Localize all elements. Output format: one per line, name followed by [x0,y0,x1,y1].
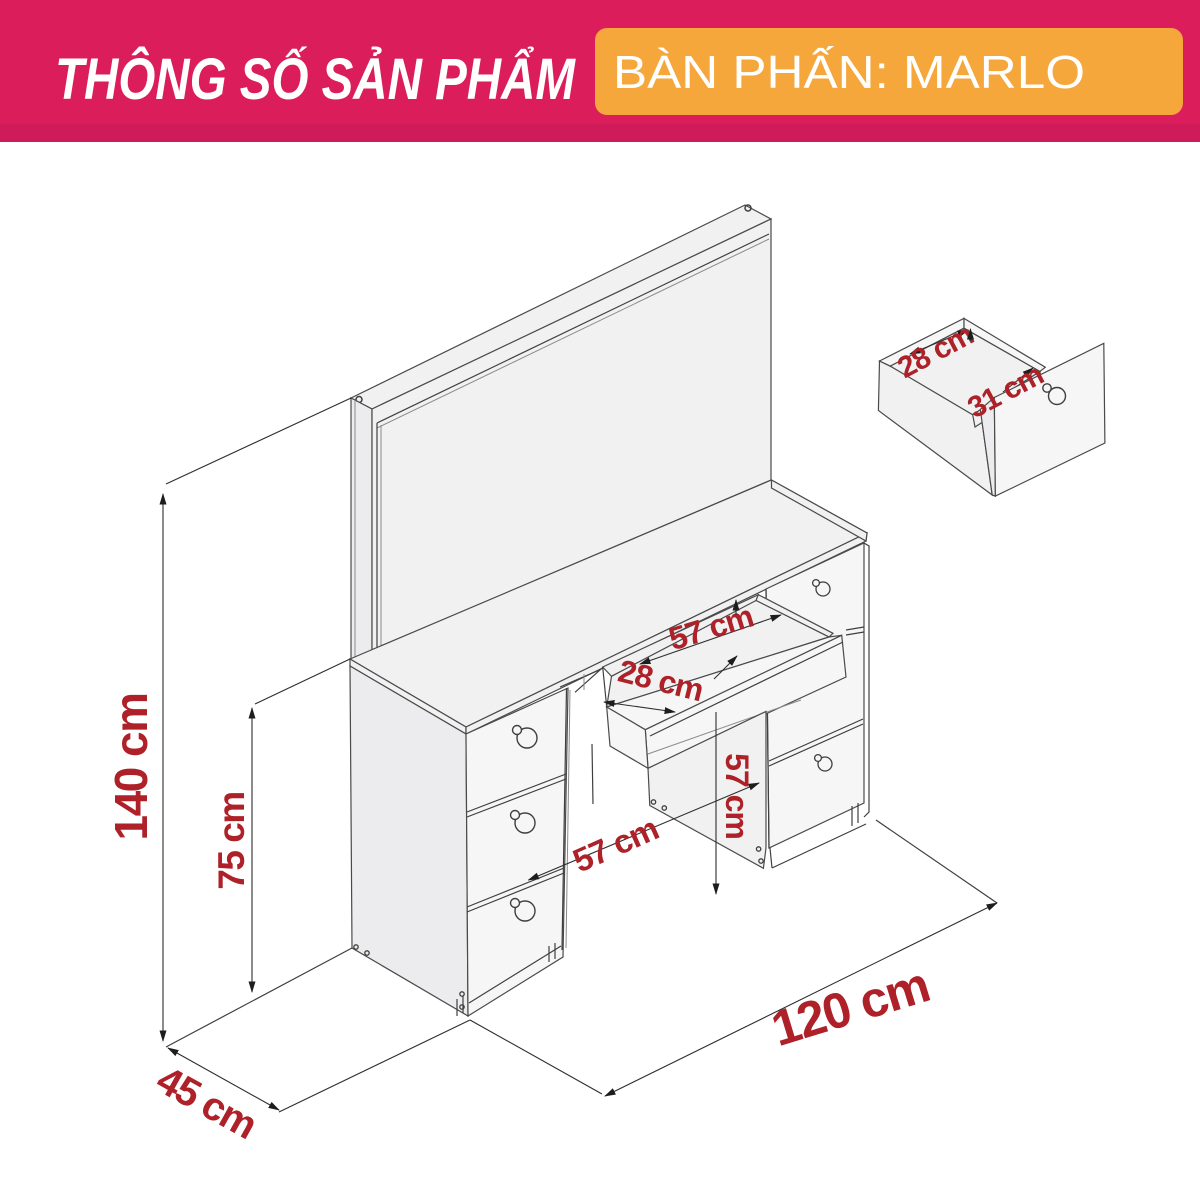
svg-text:75 cm: 75 cm [211,792,252,889]
svg-text:57 cm: 57 cm [719,753,755,839]
svg-text:THÔNG SỐ SẢN PHẨM: THÔNG SỐ SẢN PHẨM [55,47,576,112]
svg-text:140 cm: 140 cm [105,693,157,840]
svg-text:BÀN PHẤN: MARLO: BÀN PHẤN: MARLO [613,46,1085,98]
